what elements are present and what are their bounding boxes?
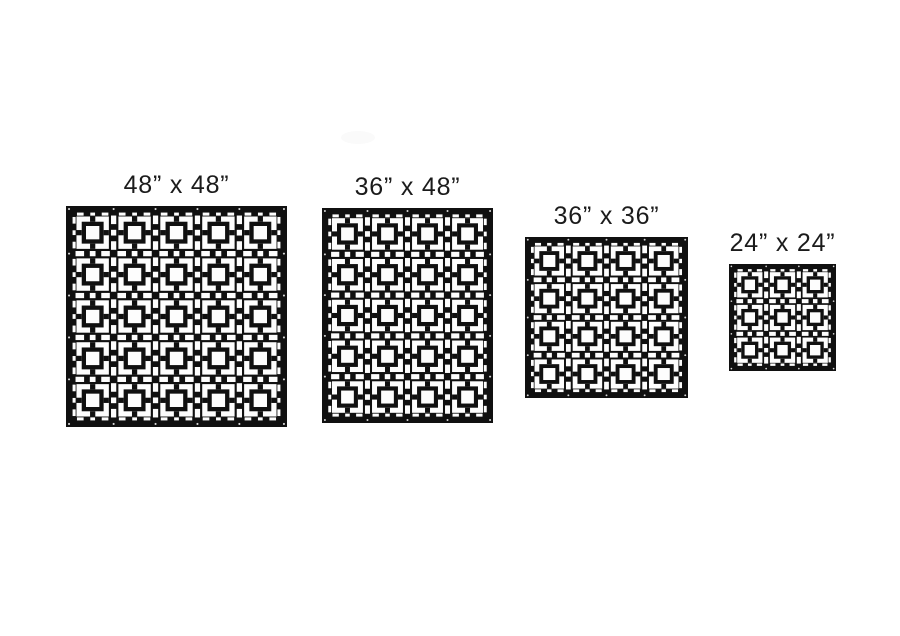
watermark-smudge (341, 131, 375, 144)
breeze-panel-36x48 (322, 208, 493, 423)
motif-grid (76, 216, 276, 416)
panel-size-label-24x24: 24” x 24” (709, 229, 856, 259)
panel-group-24x24: 24” x 24” (729, 264, 836, 371)
panel-group-36x48: 36” x 48” (322, 208, 493, 423)
breeze-panel-36x36 (525, 237, 688, 398)
size-chart-canvas: 48” x 48” 36” x 48” 36” x 36” 24” x 24” (0, 0, 900, 636)
panel-size-label-48x48: 48” x 48” (46, 171, 307, 201)
panel-group-48x48: 48” x 48” (66, 206, 287, 427)
panel-size-label-36x48: 36” x 48” (302, 173, 513, 203)
breeze-panel-48x48 (66, 206, 287, 427)
panel-size-label-36x36: 36” x 36” (505, 202, 708, 232)
breeze-panel-24x24 (729, 264, 836, 371)
panel-group-36x36: 36” x 36” (525, 237, 688, 398)
motif-grid (737, 272, 828, 363)
